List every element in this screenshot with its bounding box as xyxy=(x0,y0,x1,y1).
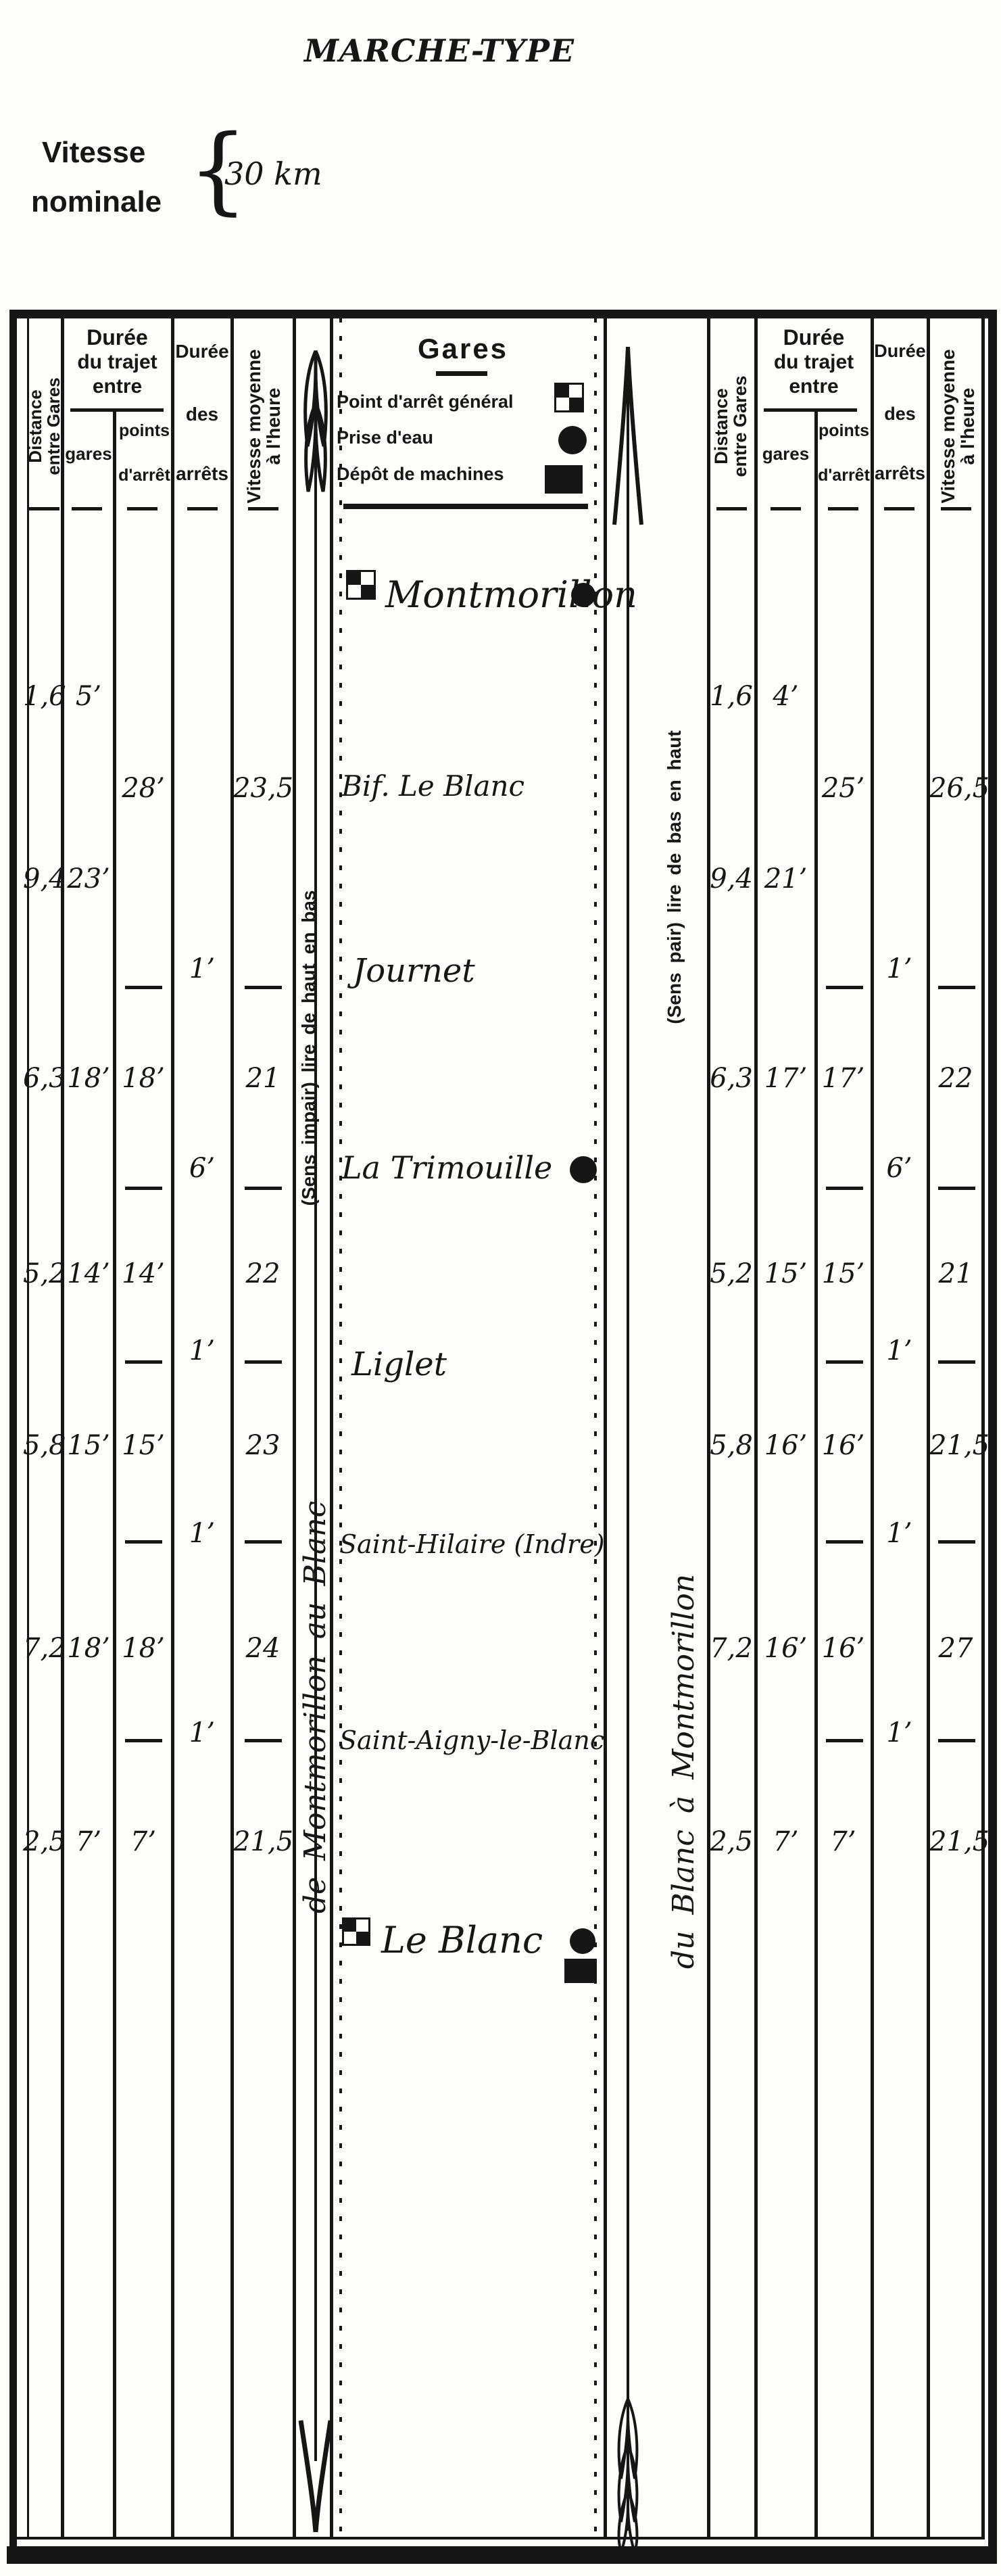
gares-time-cell: 14’ xyxy=(64,1258,114,1293)
vitesse-cell: 21,5 xyxy=(233,1826,293,1861)
distance-cell: 5,8 xyxy=(23,1430,65,1465)
vitesse-cell: 26,5 xyxy=(929,773,982,808)
vitesse-header-line1: Vitesse moyenne xyxy=(244,327,264,526)
vitesse-cell: 21,5 xyxy=(929,1826,982,1861)
arret-duration-cell: 1’ xyxy=(174,953,230,988)
distance-cell: 6,3 xyxy=(710,1063,753,1098)
route-impair-label: de Montmorillon au Blanc xyxy=(299,1386,331,2028)
duree-arrets-header-line1: Durée xyxy=(172,341,232,361)
column-line xyxy=(707,318,710,2537)
no-stop-dash xyxy=(826,1739,863,1742)
header-dash xyxy=(828,507,858,510)
arret-duration-cell: 1’ xyxy=(873,953,925,988)
water-stop-icon xyxy=(570,1928,595,1954)
no-stop-dash xyxy=(938,1360,975,1364)
route-pair-label: du Blanc à Montmorillon xyxy=(666,1335,700,2208)
points-time-cell: 14’ xyxy=(116,1258,170,1293)
duree-trajet-header-line2: du trajet xyxy=(62,352,172,373)
legend-point-arret-label: Point d'arrêt général xyxy=(337,392,513,411)
gares-column-title: Gares xyxy=(331,334,595,364)
checkered-stop-icon xyxy=(346,570,376,600)
distance-cell: 5,8 xyxy=(710,1430,753,1465)
vitesse-cell: 21,5 xyxy=(929,1430,982,1465)
column-line xyxy=(230,318,234,2537)
gares-time-cell: 15’ xyxy=(757,1258,814,1293)
vitesse-header-line2: à l'heure xyxy=(958,327,977,526)
distance-cell: 1,6 xyxy=(710,681,753,716)
no-stop-dash xyxy=(245,1360,282,1364)
no-stop-dash xyxy=(826,986,863,989)
sub-points-header-line2: d'arrêt xyxy=(116,467,172,484)
route-impair-text: de Montmorillon au Blanc xyxy=(298,1386,333,2028)
column-line xyxy=(871,318,874,2537)
no-stop-dash xyxy=(826,1540,863,1544)
points-time-cell: 28’ xyxy=(116,773,170,808)
column-line xyxy=(754,318,758,2537)
distance-header-right: Distance entre Gares xyxy=(710,327,752,526)
sub-points-header-line1: points xyxy=(116,422,172,439)
table-border-bottom xyxy=(7,2546,997,2564)
duree-arrets-header-line2: des xyxy=(872,404,928,423)
gares-title-underline xyxy=(436,371,487,376)
no-stop-dash xyxy=(245,986,282,989)
header-dash xyxy=(187,507,218,510)
route-pair-text: du Blanc à Montmorillon xyxy=(666,1335,701,2208)
vitesse-cell: 22 xyxy=(929,1063,982,1098)
distance-cell: 2,5 xyxy=(710,1826,753,1861)
distance-header-line1: Distance xyxy=(26,327,45,526)
arret-duration-cell: 1’ xyxy=(873,1518,925,1553)
gares-time-cell: 7’ xyxy=(64,1826,114,1861)
points-time-cell: 25’ xyxy=(817,773,869,808)
gares-time-cell: 18’ xyxy=(64,1633,114,1668)
gares-time-cell: 16’ xyxy=(757,1430,814,1465)
table-border-bottom-inner xyxy=(17,2537,985,2539)
points-time-cell: 15’ xyxy=(817,1258,869,1293)
points-time-cell: 16’ xyxy=(817,1633,869,1668)
arret-duration-cell: 1’ xyxy=(873,1717,925,1752)
no-stop-dash xyxy=(125,1360,162,1364)
sub-points-header-line1: points xyxy=(816,422,872,439)
no-stop-dash xyxy=(125,1187,162,1190)
arret-duration-cell: 1’ xyxy=(873,1335,925,1370)
distance-header-line2: entre Gares xyxy=(731,327,750,526)
gares-time-cell: 23’ xyxy=(64,863,114,899)
gares-time-cell: 18’ xyxy=(64,1063,114,1098)
duree-arrets-header-line1: Durée xyxy=(872,341,928,360)
sub-points-header-line2: d'arrêt xyxy=(816,467,872,484)
header-dash xyxy=(941,507,971,510)
distance-cell: 9,4 xyxy=(23,863,65,899)
gares-time-cell: 5’ xyxy=(64,681,114,716)
table-border-top xyxy=(9,310,997,318)
water-stop-icon xyxy=(558,426,587,454)
vitesse-label-line2: nominale xyxy=(31,187,162,218)
duree-trajet-header-line1: Durée xyxy=(756,327,872,350)
header-dash xyxy=(716,507,747,510)
legend-prise-eau-label: Prise d'eau xyxy=(337,428,433,447)
gares-time-cell: 21’ xyxy=(757,863,814,899)
points-time-cell: 16’ xyxy=(817,1430,869,1465)
gares-column-dotted-left xyxy=(339,318,342,2537)
column-line xyxy=(61,318,64,2537)
station-name: Le Blanc xyxy=(381,1919,543,1961)
points-time-cell: 15’ xyxy=(116,1430,170,1465)
duree-arrets-header-line3: arrêts xyxy=(172,464,232,483)
column-line-subsplit xyxy=(814,410,818,2537)
column-line xyxy=(981,318,985,2537)
gares-time-cell: 16’ xyxy=(757,1633,814,1668)
distance-header-left: Distance entre Gares xyxy=(27,327,62,526)
vitesse-header-line1: Vitesse moyenne xyxy=(938,327,958,526)
duree-trajet-header-line1: Durée xyxy=(62,327,172,350)
depot-icon xyxy=(564,1959,597,1983)
checkered-stop-icon xyxy=(554,383,584,412)
points-time-cell: 7’ xyxy=(116,1826,170,1861)
points-time-cell: 7’ xyxy=(817,1826,869,1861)
header-dash xyxy=(884,507,914,510)
table-border-left xyxy=(9,310,17,2562)
column-line xyxy=(27,318,29,2537)
duree-trajet-header-line3: entre xyxy=(62,376,172,398)
duree-trajet-underline xyxy=(70,408,164,412)
vitesse-header-line2: à l'heure xyxy=(264,327,283,526)
sub-gares-header: gares xyxy=(62,445,115,463)
arret-duration-cell: 6’ xyxy=(873,1153,925,1188)
header-dash xyxy=(248,507,278,510)
gares-time-cell: 17’ xyxy=(757,1063,814,1098)
depot-icon xyxy=(545,465,583,494)
no-stop-dash xyxy=(826,1187,863,1190)
sub-gares-header: gares xyxy=(756,445,816,463)
vitesse-cell: 24 xyxy=(233,1633,293,1668)
no-stop-dash xyxy=(125,1540,162,1544)
duree-arrets-header-line3: arrêts xyxy=(872,464,928,483)
vitesse-cell: 23 xyxy=(233,1430,293,1465)
duree-trajet-header-line2: du trajet xyxy=(756,352,872,373)
vitesse-label-line1: Vitesse xyxy=(42,137,145,168)
no-stop-dash xyxy=(938,1540,975,1544)
distance-cell: 5,2 xyxy=(23,1258,65,1293)
duree-trajet-underline xyxy=(764,408,857,412)
points-time-cell: 18’ xyxy=(116,1633,170,1668)
gares-column-dotted-right xyxy=(594,318,597,2537)
direction-pair-label: (Sens pair) lire de bas en haut xyxy=(661,423,688,1332)
column-line xyxy=(171,318,174,2537)
no-stop-dash xyxy=(245,1739,282,1742)
legend-depot-label: Dépôt de machines xyxy=(337,464,504,483)
vitesse-cell: 21 xyxy=(233,1063,293,1098)
checkered-stop-icon xyxy=(342,1917,370,1946)
station-name: Saint-Hilaire (Indre) xyxy=(339,1529,605,1559)
arret-duration-cell: 1’ xyxy=(174,1717,230,1752)
header-dash xyxy=(29,507,59,510)
distance-cell: 9,4 xyxy=(710,863,753,899)
points-time-cell: 18’ xyxy=(116,1063,170,1098)
station-name: Saint-Aigny-le-Blanc xyxy=(339,1725,604,1755)
page-title: MARCHE-TYPE xyxy=(304,32,507,69)
header-dash xyxy=(72,507,102,510)
distance-cell: 2,5 xyxy=(23,1826,65,1861)
water-stop-icon xyxy=(570,1156,597,1183)
gares-time-cell: 15’ xyxy=(64,1430,114,1465)
direction-impair-label: (Sens impair) lire de haut en bas xyxy=(295,767,323,1329)
station-name: La Trimouille xyxy=(341,1149,552,1186)
arret-duration-cell: 1’ xyxy=(174,1335,230,1370)
distance-cell: 5,2 xyxy=(710,1258,753,1293)
direction-impair-text: (Sens impair) lire de haut en bas xyxy=(299,767,318,1329)
vitesse-header-right: Vitesse moyenne à l'heure xyxy=(929,327,986,526)
gares-time-cell: 7’ xyxy=(757,1826,814,1861)
station-name: Liglet xyxy=(351,1345,447,1383)
no-stop-dash xyxy=(938,1187,975,1190)
no-stop-dash xyxy=(826,1360,863,1364)
up-arrow-icon xyxy=(607,337,649,2554)
station-name: Journet xyxy=(353,952,475,990)
vitesse-value: 30 km xyxy=(224,156,322,192)
station-name: Montmorillon xyxy=(385,573,637,616)
gares-time-cell: 4’ xyxy=(757,681,814,716)
no-stop-dash xyxy=(125,1739,162,1742)
duree-arrets-header-line2: des xyxy=(172,404,232,424)
header-dash xyxy=(771,507,801,510)
column-line xyxy=(927,318,930,2537)
vitesse-header-left: Vitesse moyenne à l'heure xyxy=(233,327,294,526)
distance-cell: 6,3 xyxy=(23,1063,65,1098)
no-stop-dash xyxy=(125,986,162,989)
points-time-cell: 17’ xyxy=(817,1063,869,1098)
distance-header-line1: Distance xyxy=(712,327,731,526)
no-stop-dash xyxy=(938,1739,975,1742)
direction-pair-text: (Sens pair) lire de bas en haut xyxy=(664,423,684,1332)
distance-cell: 7,2 xyxy=(710,1633,753,1668)
station-name: Bif. Le Blanc xyxy=(341,769,524,803)
distance-cell: 1,6 xyxy=(23,681,65,716)
distance-header-line2: entre Gares xyxy=(45,327,63,526)
vitesse-cell: 21 xyxy=(929,1258,982,1293)
no-stop-dash xyxy=(245,1187,282,1190)
water-stop-icon xyxy=(571,583,595,607)
distance-cell: 7,2 xyxy=(23,1633,65,1668)
no-stop-dash xyxy=(938,986,975,989)
header-dash xyxy=(127,507,157,510)
vitesse-cell: 23,5 xyxy=(233,773,293,808)
arret-duration-cell: 1’ xyxy=(174,1518,230,1553)
legend-bottom-rule xyxy=(343,504,588,509)
no-stop-dash xyxy=(245,1540,282,1544)
vitesse-cell: 27 xyxy=(929,1633,982,1668)
vitesse-cell: 22 xyxy=(233,1258,293,1293)
arret-duration-cell: 6’ xyxy=(174,1153,230,1188)
marche-type-document: MARCHE-TYPE Vitesse nominale { 30 km Dis… xyxy=(0,0,1001,2576)
duree-trajet-header-line3: entre xyxy=(756,376,872,398)
column-line-subsplit xyxy=(113,410,116,2537)
